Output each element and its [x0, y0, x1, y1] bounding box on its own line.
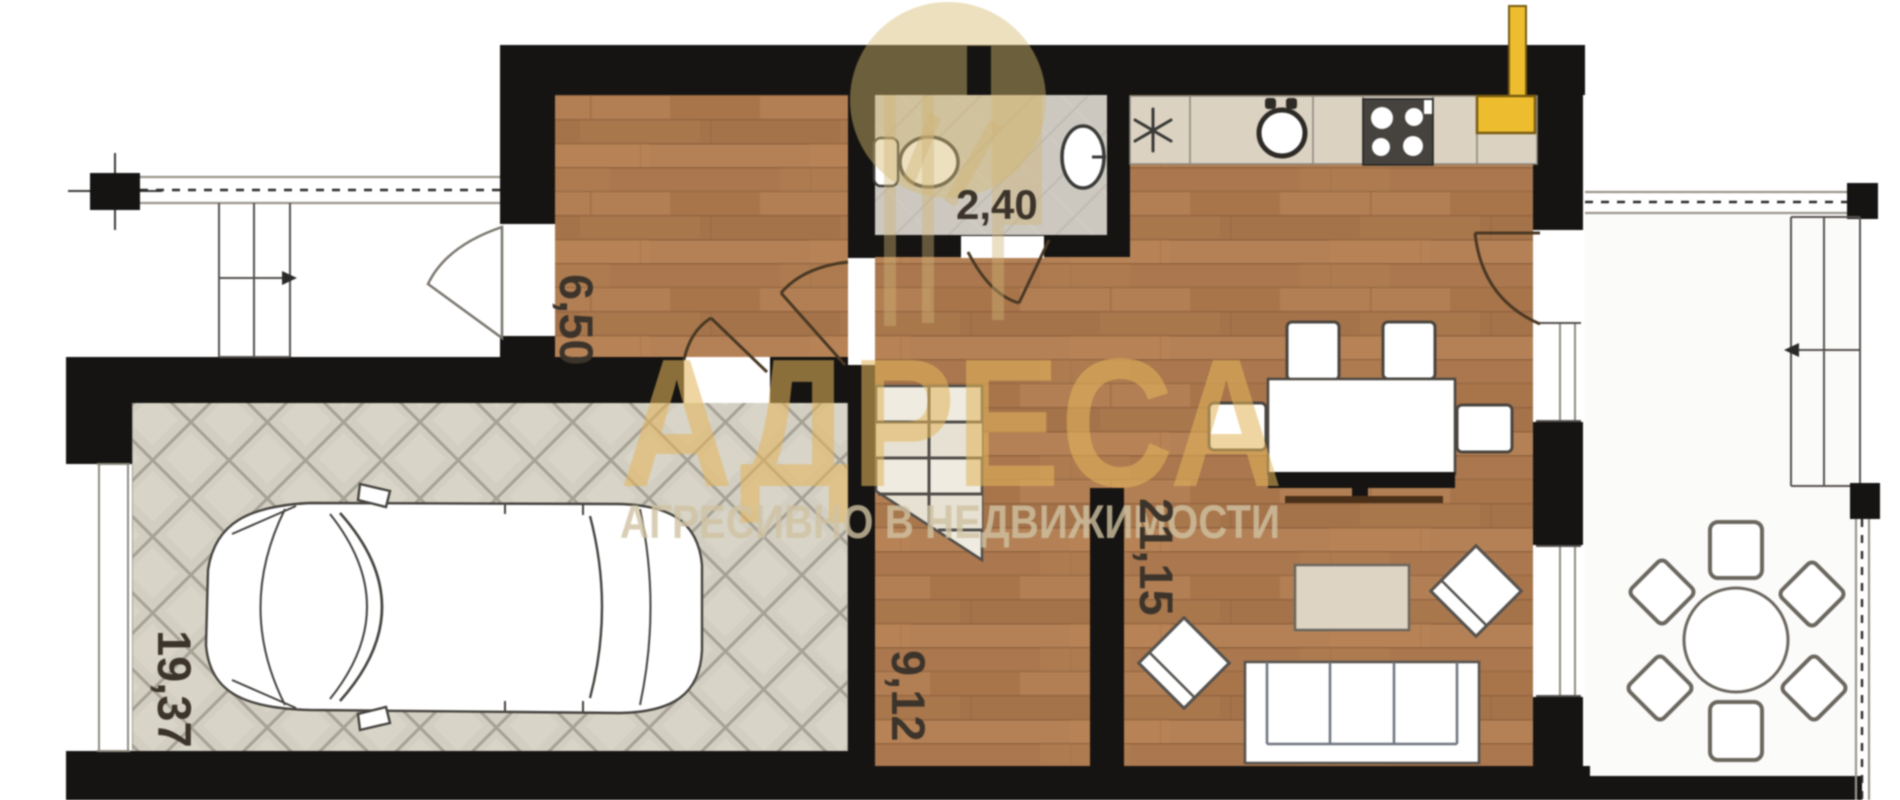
svg-text:2,40: 2,40	[956, 181, 1038, 228]
svg-text:6,50: 6,50	[550, 274, 603, 365]
svg-text:21,15: 21,15	[1130, 498, 1183, 616]
svg-text:9,12: 9,12	[882, 650, 935, 741]
svg-text:19,37: 19,37	[148, 630, 201, 748]
